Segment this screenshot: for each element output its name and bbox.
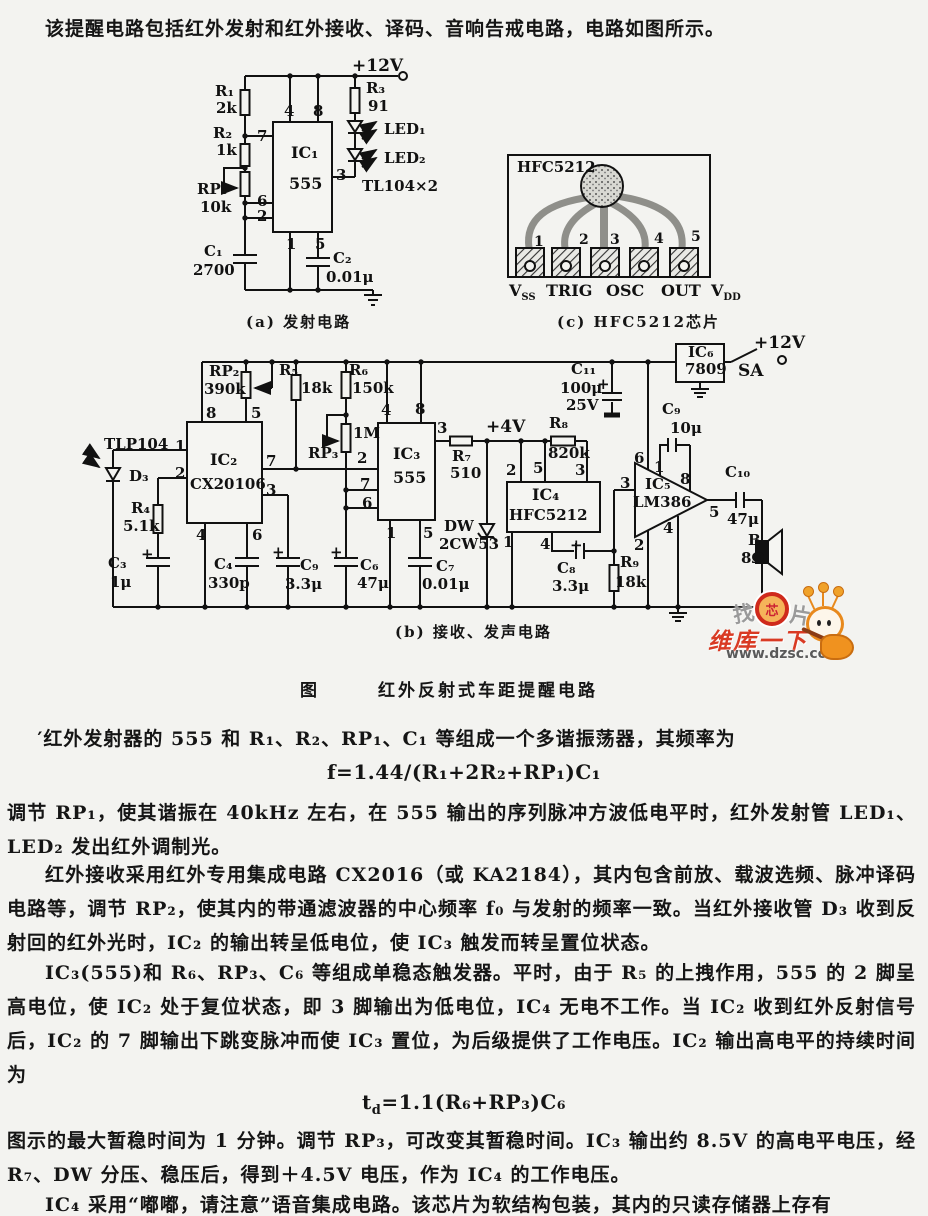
diagram-label: D₃	[129, 469, 149, 484]
diagram-label: RP₁	[197, 182, 227, 197]
diagram-label: 555	[289, 176, 322, 192]
diagram-label: R₈	[549, 416, 568, 431]
diagram-label: C₃	[108, 556, 127, 571]
diagram-label: 18k	[615, 575, 646, 590]
diagram-label: 150k	[352, 381, 394, 396]
diagram-label: 4	[663, 521, 673, 536]
diagram-label: 1	[175, 439, 185, 454]
diagram-label: R₇	[452, 449, 471, 464]
diagram-label: 555	[393, 470, 426, 486]
formula-t-sub: d	[372, 1103, 382, 1118]
diagram-label: IC₁	[291, 145, 318, 161]
diagram-label: CX20106	[190, 477, 266, 492]
paragraph-3: 红外接收采用红外专用集成电路 CX2016（或 KA2184），其内包含前放、载…	[7, 858, 916, 960]
diagram-label: R₉	[620, 555, 639, 570]
diagram-label: 1M	[353, 426, 380, 441]
diagram-label: 100μ	[560, 381, 602, 396]
diagram-label: 5	[423, 526, 433, 541]
diagram-label: 7	[257, 129, 267, 144]
diagram-label: 10μ	[670, 421, 702, 436]
diagram-label: HFC5212	[509, 508, 588, 523]
dzsc-watermark: 找 芯 片 维库一下 www.dzsc.com	[700, 578, 870, 668]
diagram-label: 4	[196, 528, 206, 543]
diagram-label: 2	[506, 463, 516, 478]
diagram-label: 3.3μ	[285, 577, 322, 592]
caption-a: (a) 发射电路	[246, 311, 351, 332]
diagram-label: 390k	[204, 382, 246, 397]
diagram-label: R₃	[366, 81, 385, 96]
diagram-label: 1	[503, 535, 513, 550]
diagram-label: 2	[357, 451, 367, 466]
diagram-label: 5	[533, 461, 543, 476]
diagram-label: 8	[313, 104, 323, 119]
diagram-label: +	[272, 545, 285, 560]
diagram-label: RP₃	[308, 446, 338, 461]
diagram-label: C₁₁	[571, 362, 596, 377]
diagram-label: 3	[336, 168, 346, 183]
diagram-label: 1	[534, 235, 544, 249]
diagram-label: 1	[286, 237, 296, 252]
diagram-label: C₉	[300, 558, 319, 573]
diagram-label: C₇	[436, 559, 455, 574]
diagram-label: 8Ω	[741, 551, 765, 566]
diagram-label: SA	[738, 363, 763, 380]
paragraph-6: IC₄ 采用“嘟嘟，请注意”语音集成电路。该芯片为软结构包装，其内的只读存储器上…	[7, 1188, 916, 1216]
diagram-label: TRIG	[546, 283, 592, 299]
diagram-label: 1	[386, 526, 396, 541]
diagram-label: DW	[444, 519, 474, 534]
diagram-label: B	[748, 533, 761, 548]
diagram-label: 5	[251, 406, 261, 421]
diagram-label: 5	[315, 237, 325, 252]
diagram-label: 47μ	[727, 512, 759, 527]
diagram-label: 7809	[685, 362, 727, 377]
diagram-label: 2	[257, 209, 267, 224]
diagram-label: TL104×2	[362, 179, 438, 194]
diagram-label: LM386	[633, 495, 691, 510]
diagram-label: 25V	[566, 398, 599, 413]
diagram-label: +	[570, 538, 583, 553]
diagram-label: 3	[266, 483, 276, 498]
diagram-label: IC₆	[688, 345, 714, 360]
diagram-label: +12V	[352, 58, 403, 75]
diagram-label: VSS	[509, 283, 536, 303]
diagram-label: LED₁	[384, 122, 426, 137]
diagram-label: C₈	[557, 561, 576, 576]
mascot-body	[820, 634, 854, 660]
diagram-label: 1μ	[110, 575, 131, 590]
diagram-label: IC₅	[645, 477, 671, 492]
diagram-label: 510	[450, 466, 481, 481]
diagram-label: R₁	[215, 84, 234, 99]
formula-t: t	[362, 1090, 372, 1114]
diagram-label: +	[597, 377, 610, 392]
diagram-label: 3	[610, 233, 620, 247]
diagram-label: IC₂	[210, 452, 237, 468]
diagram-label: +4V	[486, 419, 525, 436]
diagram-label: 2700	[193, 263, 235, 278]
diagram-label: 1	[654, 460, 664, 475]
diagram-label: 5	[691, 230, 701, 244]
magnifier-icon: 芯	[755, 592, 789, 626]
diagram-label: 3	[620, 476, 630, 491]
diagram-label: 5.1k	[123, 519, 160, 534]
formula-time-constant: td=1.1(R₆+RP₃)C₆	[0, 1090, 928, 1118]
diagram-label: 4	[654, 232, 664, 246]
diagram-label: LED₂	[384, 151, 426, 166]
diagram-label: 5	[709, 505, 719, 520]
diagram-label: 2	[579, 233, 589, 247]
diagram-label: TLP104	[104, 437, 168, 452]
diagram-label: 2k	[216, 101, 237, 116]
diagram-label: C₁	[204, 244, 223, 259]
diagram-label: 6	[634, 451, 644, 466]
caption-c: (c) HFC5212芯片	[557, 311, 720, 332]
diagram-label: IC₃	[393, 446, 420, 462]
diagram-label: 820k	[548, 446, 590, 461]
diagram-label: 1k	[216, 143, 237, 158]
diagram-label: 2	[634, 538, 644, 553]
diagram-label: 8	[415, 402, 425, 417]
diagram-label: IC₄	[532, 487, 559, 503]
diagram-label: 8	[206, 406, 216, 421]
diagram-label: 330p	[208, 576, 250, 591]
paragraph-4: IC₃(555)和 R₆、RP₃、C₆ 等组成单稳态触发器。平时，由于 R₅ 的…	[7, 956, 916, 1092]
diagram-label: 2CW53	[439, 537, 499, 552]
diagram-label: VDD	[711, 283, 741, 303]
mascot-icon	[798, 590, 862, 664]
formula-rest: =1.1(R₆+RP₃)C₆	[381, 1090, 566, 1114]
diagram-label: 47μ	[357, 576, 389, 591]
diagram-label: +	[330, 545, 343, 560]
diagram-label: 18k	[301, 381, 332, 396]
diagram-label: C₉	[662, 402, 681, 417]
diagram-label: 2	[175, 466, 185, 481]
scanned-document-page: 该提醒电路包括红外发射和红外接收、译码、音响告戒电路，电路如图所示。	[0, 0, 928, 1216]
diagram-label: 0.01μ	[326, 270, 374, 285]
diagram-label: +12V	[754, 335, 805, 352]
paragraph-1: ′红外发射器的 555 和 R₁、R₂、RP₁、C₁ 等组成一个多谐振荡器，其频…	[7, 722, 916, 756]
figure-label: 图	[300, 681, 320, 701]
diagram-label: R₅	[279, 363, 298, 378]
diagram-label: 7	[266, 454, 276, 469]
diagram-label: 4	[381, 403, 391, 418]
diagram-label: 4	[284, 104, 294, 119]
diagram-label: R₆	[349, 363, 368, 378]
paragraph-2: 调节 RP₁，使其谐振在 40kHz 左右，在 555 输出的序列脉冲方波低电平…	[7, 796, 916, 864]
caption-b: (b) 接收、发声电路	[395, 621, 552, 642]
diagram-label: 6	[252, 528, 262, 543]
diagram-label: HFC5212	[517, 160, 596, 175]
diagram-label: C₄	[214, 557, 233, 572]
figure-title: 红外反射式车距提醒电路	[378, 681, 598, 701]
diagram-label: C₂	[333, 251, 352, 266]
diagram-label: +	[141, 547, 154, 562]
diagram-label: 10k	[200, 200, 231, 215]
figure-caption: 图红外反射式车距提醒电路	[300, 676, 598, 701]
paragraph-5: 图示的最大暂稳时间为 1 分钟。调节 RP₃，可改变其暂稳时间。IC₃ 输出约 …	[7, 1124, 916, 1192]
diagram-label: OUT	[661, 283, 701, 299]
diagram-label: RP₂	[209, 364, 239, 379]
formula-frequency: f=1.44/(R₁+2R₂+RP₁)C₁	[0, 760, 928, 784]
diagram-label: R₂	[213, 126, 232, 141]
diagram-label: R₄	[131, 501, 150, 516]
diagram-label: 3.3μ	[552, 579, 589, 594]
diagram-label: 0.01μ	[422, 577, 470, 592]
diagram-label: 6	[362, 496, 372, 511]
diagram-label: C₁₀	[725, 465, 750, 480]
diagram-label: C₆	[360, 558, 379, 573]
diagram-label: 7	[360, 477, 370, 492]
diagram-label: 8	[680, 472, 690, 487]
diagram-label: OSC	[606, 283, 644, 299]
diagram-label: 4	[540, 537, 550, 552]
diagram-label: 91	[368, 99, 389, 114]
diagram-label: 3	[437, 421, 447, 436]
diagram-label: 3	[575, 463, 585, 478]
